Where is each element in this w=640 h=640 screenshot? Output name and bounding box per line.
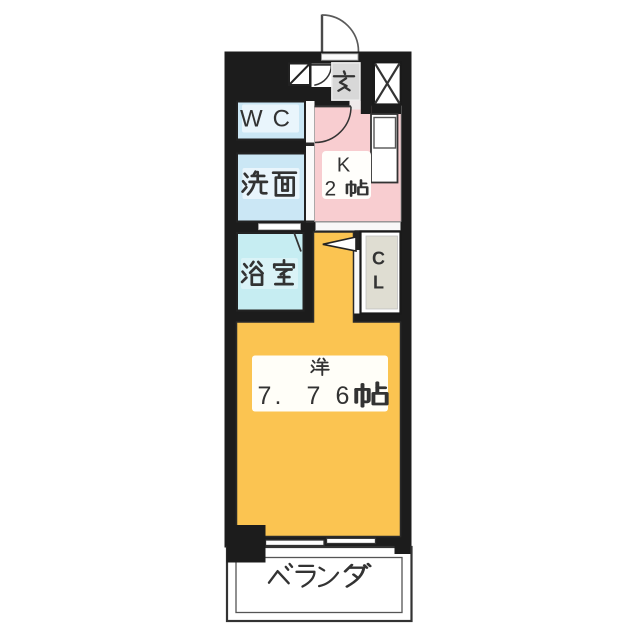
svg-text:7: 7 [307, 382, 321, 410]
svg-text:L: L [373, 273, 384, 293]
svg-text:C: C [372, 249, 385, 269]
svg-text:7: 7 [258, 382, 272, 410]
svg-text:.: . [275, 382, 282, 410]
svg-text:6: 6 [336, 382, 350, 410]
svg-text:K: K [337, 155, 351, 177]
svg-text:2: 2 [325, 178, 337, 201]
svg-text:WC: WC [240, 106, 300, 133]
